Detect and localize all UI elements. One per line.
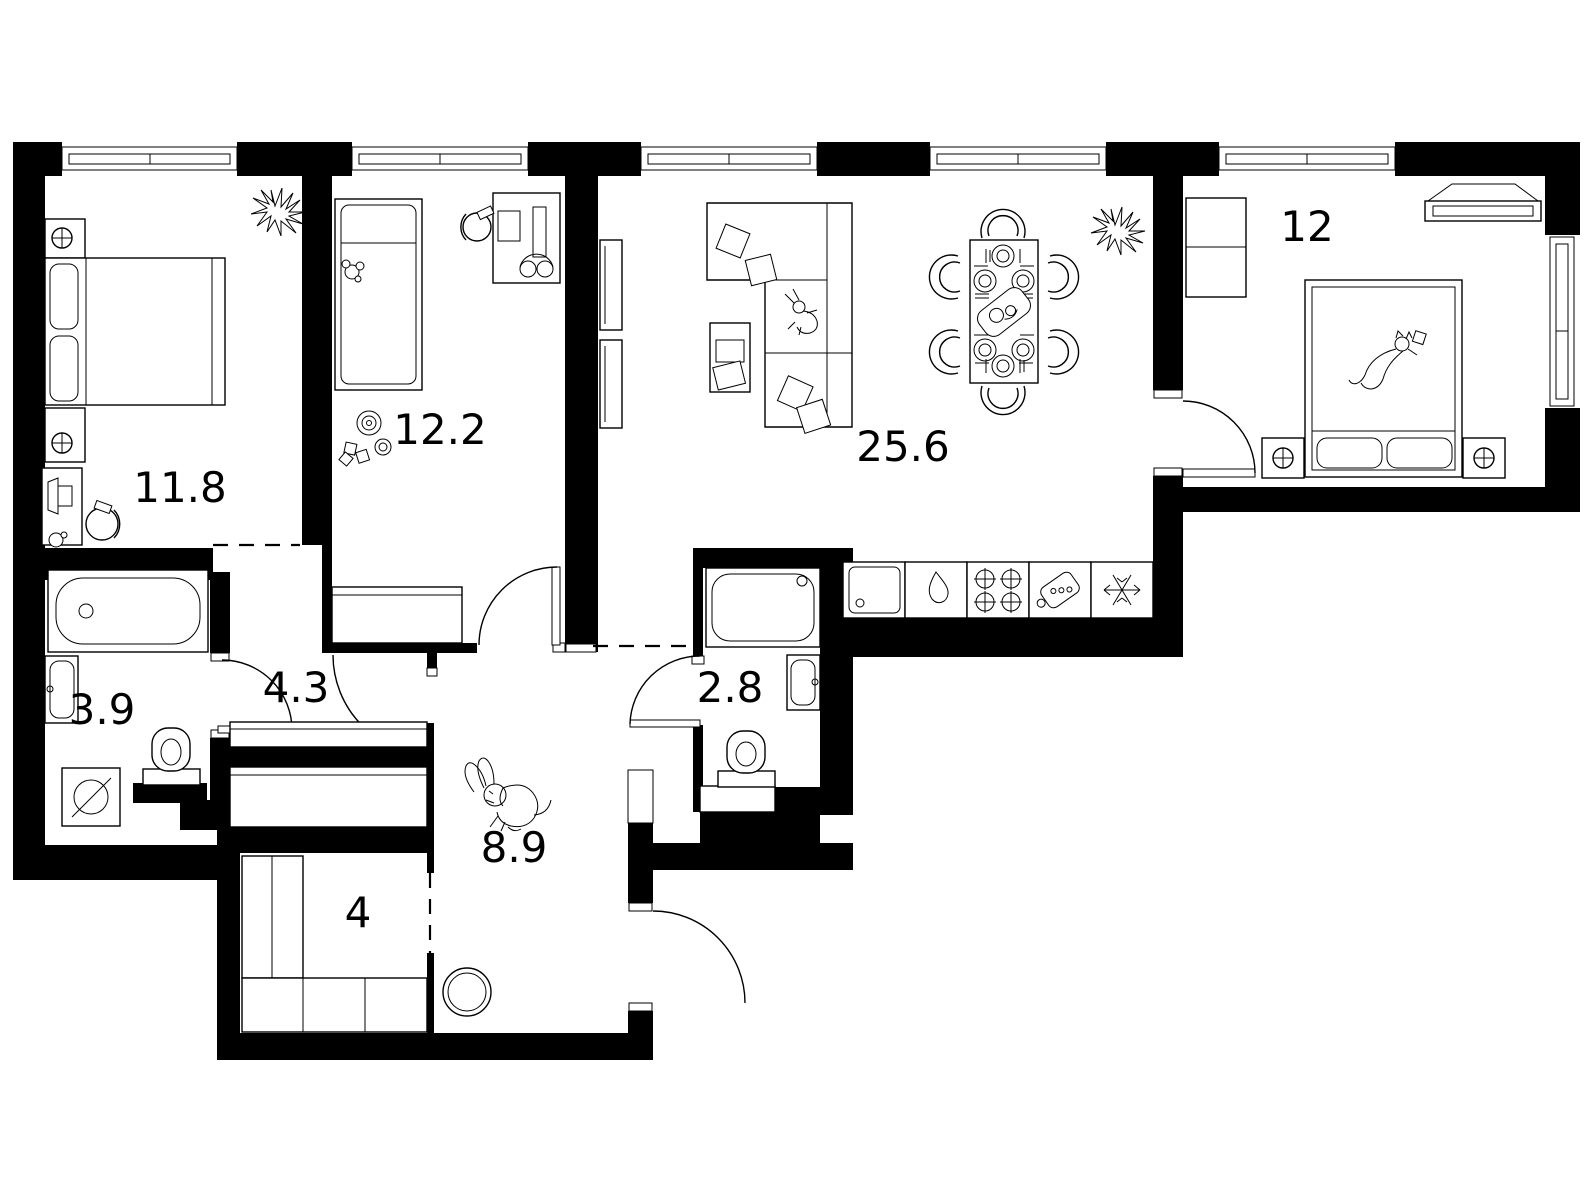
room-area-label: 8.9 <box>481 823 548 872</box>
tv-console-icon <box>1425 184 1541 221</box>
room-area-label: 12.2 <box>393 405 487 454</box>
fridge-snowflake-icon <box>1091 562 1153 618</box>
hallway-furniture <box>230 722 427 827</box>
shelving-icon <box>242 978 427 1032</box>
stove-icon <box>967 562 1029 618</box>
console-shelf-icon <box>600 240 622 428</box>
sink-icon <box>787 655 820 710</box>
wall-niche <box>628 770 653 823</box>
window <box>1550 237 1574 406</box>
door-bedroom-2 <box>1154 390 1255 477</box>
dining-table-icon <box>929 209 1078 414</box>
coffee-table-icon <box>710 323 750 392</box>
window <box>641 147 817 170</box>
nightstand-icon <box>1262 438 1304 478</box>
window <box>62 147 237 170</box>
dresser-icon <box>332 587 462 643</box>
room-area-label: 4 <box>345 888 372 937</box>
shoe-cabinet-icon <box>230 722 427 747</box>
toilet-icon <box>700 731 775 812</box>
wardrobe-icon <box>1186 198 1246 297</box>
bedroom-2-furniture <box>1186 184 1541 478</box>
door-shower-room <box>630 656 704 727</box>
plant-icon <box>251 188 305 236</box>
office-chair-icon <box>86 501 120 540</box>
cutting-board-icon <box>1029 562 1091 618</box>
desk-icon <box>493 193 560 283</box>
nightstand-icon <box>1463 438 1505 478</box>
kitchen-counter <box>843 562 1153 618</box>
toilet-icon <box>143 728 200 785</box>
storage-furniture <box>242 856 427 1032</box>
window <box>352 147 528 170</box>
corner-sofa-icon <box>707 203 852 433</box>
nightstand-icon <box>45 219 85 258</box>
shower-tray-icon <box>706 568 820 647</box>
dog-icon <box>465 758 551 831</box>
plant-icon <box>1091 207 1145 255</box>
room-area-label: 11.8 <box>133 463 227 512</box>
double-bed-icon <box>45 258 225 405</box>
window <box>1219 147 1395 170</box>
mirror-icon <box>443 968 491 1016</box>
living-room-furniture <box>600 203 1153 618</box>
corridor-items <box>443 758 551 1016</box>
room-area-label: 12 <box>1280 202 1333 251</box>
room-area-label: 25.6 <box>856 422 950 471</box>
faucet-icon <box>905 562 967 618</box>
nightstand-icon <box>45 408 85 462</box>
office-chair-icon <box>461 206 494 241</box>
wardrobe-icon <box>242 856 303 978</box>
window <box>930 147 1106 170</box>
kitchen-sink-icon <box>843 562 905 618</box>
wardrobe-icon <box>230 767 427 827</box>
room-area-label: 2.8 <box>697 663 764 712</box>
floor-plan-svg: 11.8 12.2 25.6 12 3.9 4.3 2.8 8.9 4 <box>0 0 1590 1200</box>
bathtub-icon <box>48 570 208 652</box>
washing-machine-icon <box>62 768 120 826</box>
room-area-label: 3.9 <box>69 685 136 734</box>
single-bed-icon <box>335 199 422 390</box>
room-area-label: 4.3 <box>263 663 330 712</box>
toys-icon <box>339 411 391 466</box>
floor-plan-page: 11.8 12.2 25.6 12 3.9 4.3 2.8 8.9 4 <box>0 0 1590 1200</box>
